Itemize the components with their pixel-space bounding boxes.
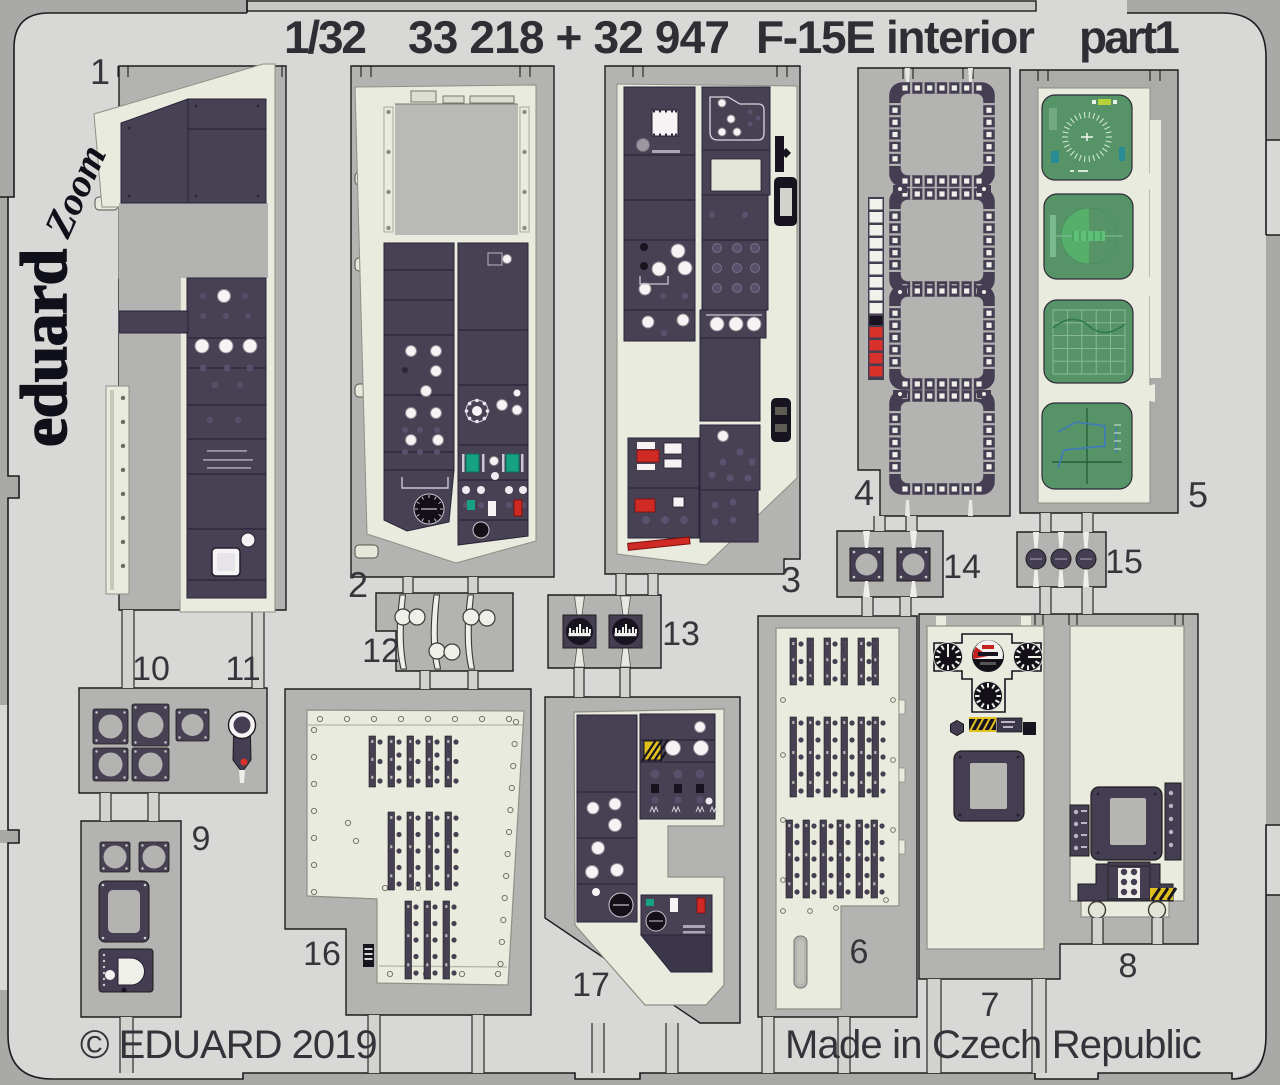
svg-text:Made in Czech Republic: Made in Czech Republic bbox=[785, 1023, 1201, 1067]
svg-text:7: 7 bbox=[981, 986, 1000, 1024]
svg-text:3: 3 bbox=[781, 559, 801, 600]
svg-text:F-15E interior: F-15E interior bbox=[756, 11, 1035, 63]
svg-text:9: 9 bbox=[192, 820, 211, 858]
svg-text:10: 10 bbox=[132, 650, 170, 688]
svg-text:part1: part1 bbox=[1079, 11, 1179, 63]
svg-text:16: 16 bbox=[303, 935, 341, 973]
svg-text:eduard: eduard bbox=[8, 249, 81, 447]
svg-text:1/32: 1/32 bbox=[284, 11, 365, 63]
svg-text:1: 1 bbox=[90, 51, 110, 92]
svg-text:4: 4 bbox=[854, 472, 874, 513]
svg-text:12: 12 bbox=[362, 632, 400, 670]
svg-text:15: 15 bbox=[1105, 543, 1143, 581]
svg-text:17: 17 bbox=[572, 966, 610, 1004]
svg-text:13: 13 bbox=[662, 615, 700, 653]
svg-text:© EDUARD 2019: © EDUARD 2019 bbox=[80, 1023, 377, 1067]
svg-text:2: 2 bbox=[348, 564, 368, 605]
svg-text:5: 5 bbox=[1188, 474, 1208, 515]
svg-text:8: 8 bbox=[1119, 947, 1138, 985]
svg-text:33 218 + 32 947: 33 218 + 32 947 bbox=[408, 11, 729, 63]
svg-text:11: 11 bbox=[225, 650, 260, 688]
svg-text:14: 14 bbox=[943, 548, 981, 586]
svg-text:6: 6 bbox=[850, 933, 869, 971]
